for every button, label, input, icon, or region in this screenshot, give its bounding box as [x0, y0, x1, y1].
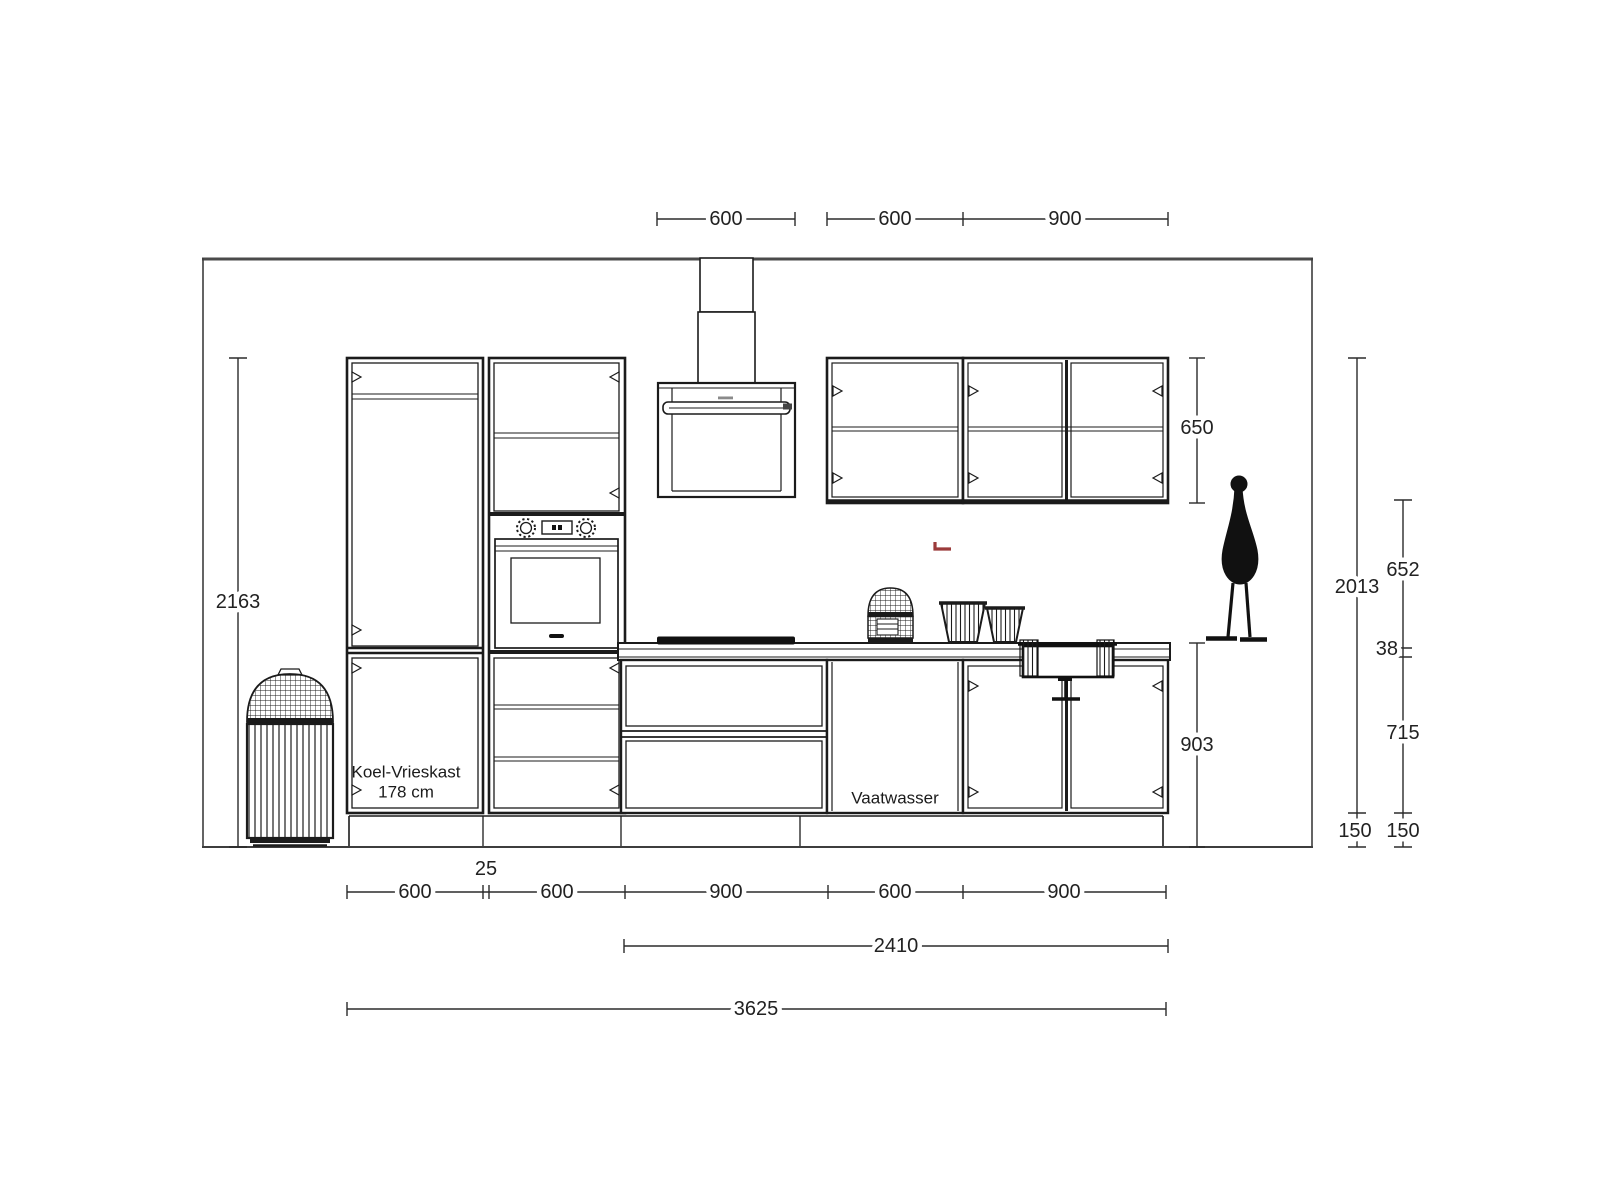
- dim-label-worktop: 38: [1376, 638, 1398, 660]
- hood-brand-mark: [718, 397, 733, 400]
- oven-handle: [549, 634, 564, 638]
- wall-cabinet-900-left-door: [968, 363, 1062, 497]
- dim-label-sink-width: 900: [1047, 881, 1080, 903]
- hood-body: [658, 383, 795, 497]
- drawer-front-bottom: [626, 741, 822, 808]
- dim-label-wall-large: 900: [1048, 208, 1081, 230]
- plinth: [349, 816, 1163, 846]
- cage-dome: [247, 674, 333, 722]
- wall-cabinet-600: [827, 358, 963, 503]
- decor-cage-dome: [868, 588, 913, 616]
- sink-rack-right: [1097, 640, 1114, 676]
- fridge-tall-cabinet: [347, 358, 483, 813]
- sink-cabinet-left-door: [968, 666, 1062, 808]
- dim-label-oven-width: 600: [540, 881, 573, 903]
- hood-chimney-lower: [698, 312, 755, 383]
- sink-cabinet-right-door: [1071, 666, 1163, 808]
- dim-label-filler: 25: [475, 858, 497, 880]
- trash-birdcage: [247, 669, 333, 846]
- cage-body: [247, 724, 333, 838]
- extractor-hood: [658, 258, 795, 497]
- fridge-label-line1: Koel-Vrieskast: [352, 763, 461, 782]
- kitchen-elevation-canvas: Koel-Vrieskast 178 cm: [0, 0, 1600, 1200]
- wall-cabinet-600-door: [832, 363, 958, 497]
- dim-right-chain-2: [1394, 500, 1412, 847]
- kitchen-elevation-drawing: Koel-Vrieskast 178 cm: [0, 0, 1600, 1200]
- sink-rack-left: [1020, 640, 1038, 676]
- decor-birdcage: [868, 588, 913, 643]
- dim-label-run: 2410: [874, 935, 919, 957]
- dim-label-base-height: 903: [1180, 734, 1213, 756]
- dim-label-plinth-a: 150: [1338, 820, 1371, 842]
- wall-cabinet-900: [963, 358, 1168, 503]
- dim-label-base-front: 715: [1386, 722, 1419, 744]
- dim-label-splashback: 652: [1386, 559, 1419, 581]
- power-outlet-marker: [935, 542, 951, 549]
- drawer-front-top: [626, 666, 822, 726]
- dishwasher-label: Vaatwasser: [851, 789, 939, 808]
- oven-tall-cabinet: [489, 358, 625, 813]
- decor-basket-1: [939, 603, 987, 642]
- dim-label-hood-width: 600: [709, 208, 742, 230]
- dim-label-drawer-width: 900: [709, 881, 742, 903]
- hood-control-mark: [783, 404, 792, 410]
- dim-label-wall-cab-height: 650: [1180, 417, 1213, 439]
- dim-label-plinth-b: 150: [1386, 820, 1419, 842]
- dim-label-fridge-width: 600: [398, 881, 431, 903]
- fridge-label-line2: 178 cm: [378, 783, 434, 802]
- decor-basket-2: [985, 608, 1025, 642]
- dim-right-chain-1: [1348, 358, 1366, 847]
- cooktop: [657, 637, 795, 645]
- decor-cage-door: [877, 619, 898, 635]
- dim-label-total-height: 2163: [216, 591, 261, 613]
- drawer-base-cabinet: [621, 660, 827, 813]
- dim-label-wall-small: 600: [878, 208, 911, 230]
- hood-chimney-upper: [700, 258, 753, 312]
- dim-label-upper-run: 2013: [1335, 576, 1380, 598]
- decor-bird-sculpture: [1206, 476, 1267, 640]
- wall-cabinet-900-right-door: [1071, 363, 1163, 497]
- dim-bottom-row1: [347, 885, 1166, 899]
- dim-label-dw-width: 600: [878, 881, 911, 903]
- dim-label-total-width: 3625: [734, 998, 779, 1020]
